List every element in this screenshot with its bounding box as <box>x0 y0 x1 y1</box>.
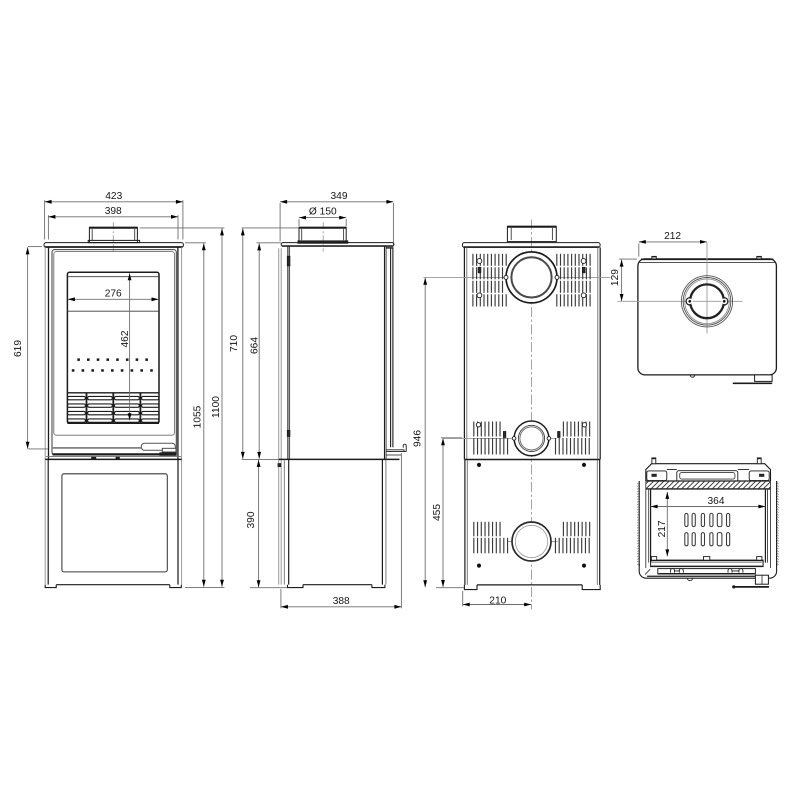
svg-text:619: 619 <box>13 340 24 357</box>
svg-text:210: 210 <box>489 595 506 606</box>
svg-text:276: 276 <box>105 288 122 299</box>
svg-text:423: 423 <box>105 191 122 202</box>
svg-text:462: 462 <box>120 330 131 347</box>
svg-text:1100: 1100 <box>211 396 222 418</box>
svg-text:664: 664 <box>249 337 260 354</box>
svg-text:455: 455 <box>432 504 443 521</box>
svg-text:212: 212 <box>664 231 681 242</box>
svg-text:364: 364 <box>708 496 725 507</box>
svg-text:Ø 150: Ø 150 <box>309 206 337 217</box>
svg-text:1055: 1055 <box>193 405 204 428</box>
svg-text:217: 217 <box>657 520 668 537</box>
svg-text:349: 349 <box>331 191 348 202</box>
svg-text:946: 946 <box>413 430 424 447</box>
svg-text:129: 129 <box>610 269 621 286</box>
svg-text:398: 398 <box>105 206 122 217</box>
svg-text:388: 388 <box>333 596 350 607</box>
svg-text:710: 710 <box>229 335 240 352</box>
svg-text:390: 390 <box>246 511 257 528</box>
